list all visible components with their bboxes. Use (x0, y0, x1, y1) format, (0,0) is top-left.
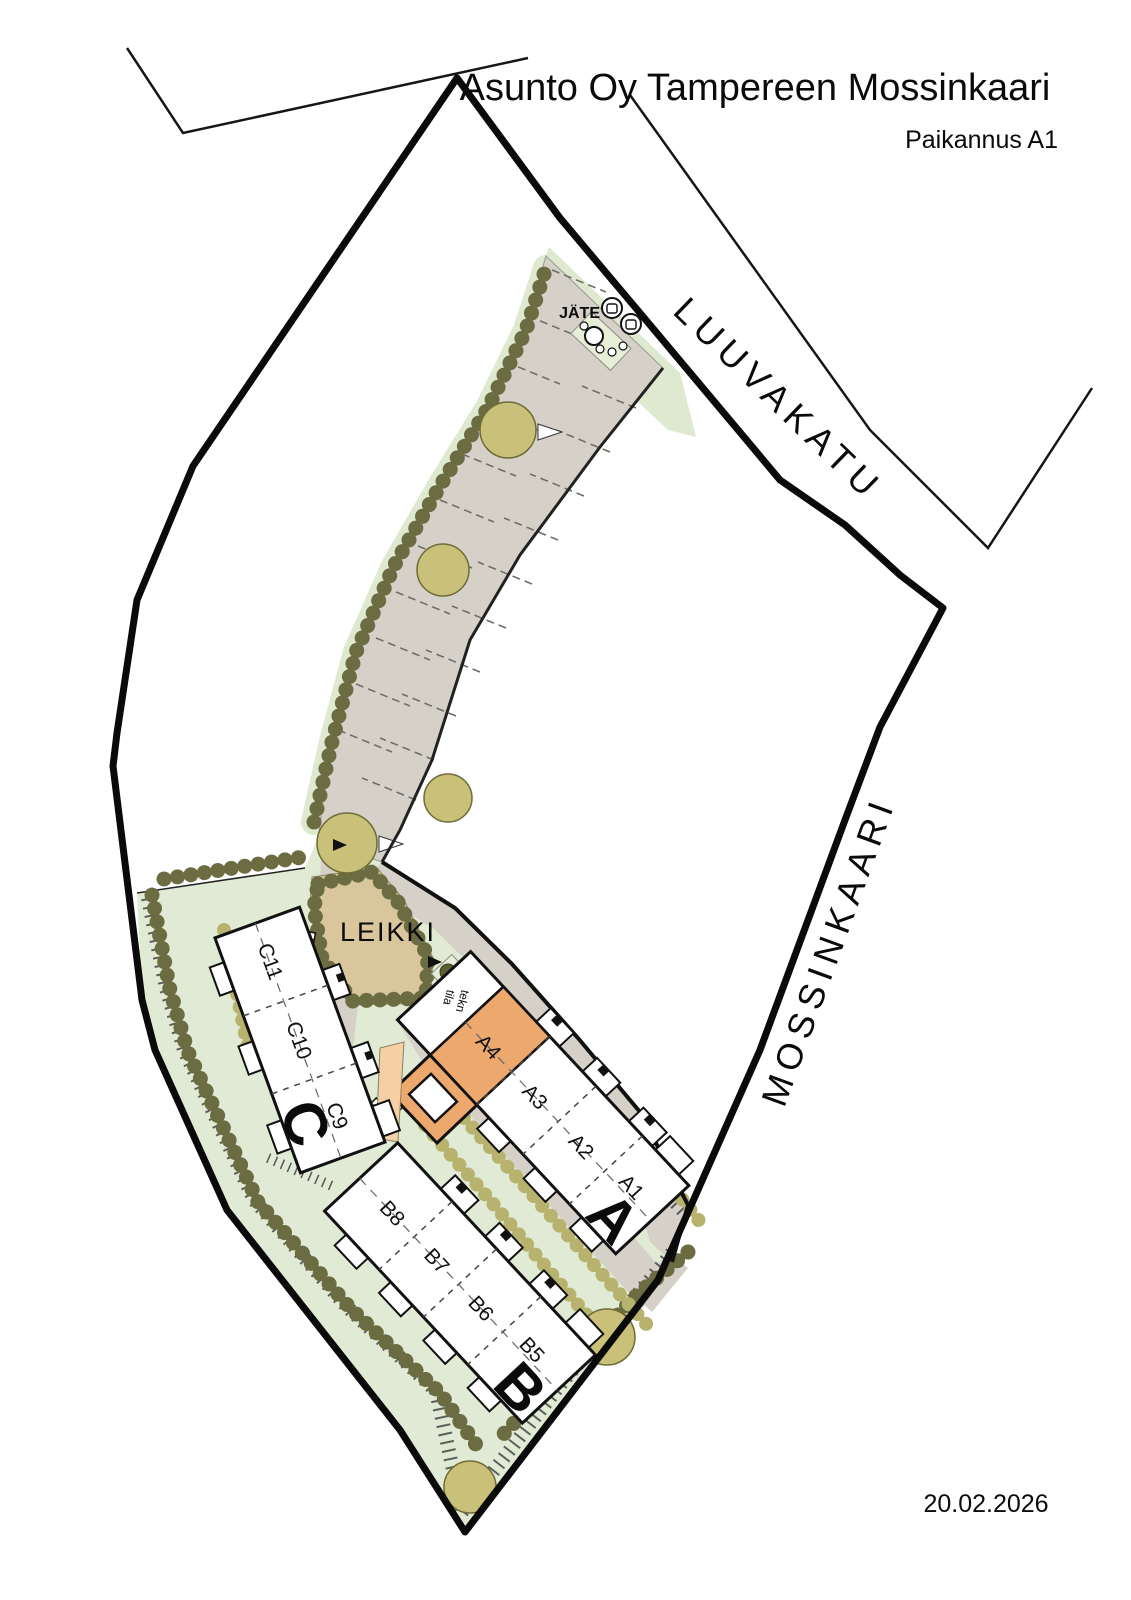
waste-point-label: JÄTE (559, 304, 600, 322)
waste-bin-small-icon (608, 348, 616, 356)
tree (480, 402, 536, 458)
waste-bin-icon (602, 298, 622, 318)
page-subtitle: Paikannus A1 (905, 126, 1058, 154)
waste-bin-small-icon (619, 342, 627, 350)
page-title: Asunto Oy Tampereen Mossinkaari (460, 67, 1051, 109)
tree (424, 774, 472, 822)
plan-date: 20.02.2026 (923, 1490, 1048, 1518)
tree (417, 544, 469, 596)
site-plan-page: tekn tila A4 A3 A2 A1 A B8 B7 B6 B5 B (0, 0, 1131, 1600)
tree (317, 813, 377, 873)
site-plan-drawing: tekn tila A4 A3 A2 A1 A B8 B7 B6 B5 B (0, 0, 1131, 1600)
street-label-mossinkaari: MOSSINKAARI (753, 790, 903, 1111)
waste-bin-icon (585, 327, 603, 345)
waste-bin-icon (621, 314, 641, 334)
play-area-label: LEIKKI (340, 917, 436, 947)
waste-bin-small-icon (596, 345, 604, 353)
waste-bin-small-icon (580, 322, 588, 330)
